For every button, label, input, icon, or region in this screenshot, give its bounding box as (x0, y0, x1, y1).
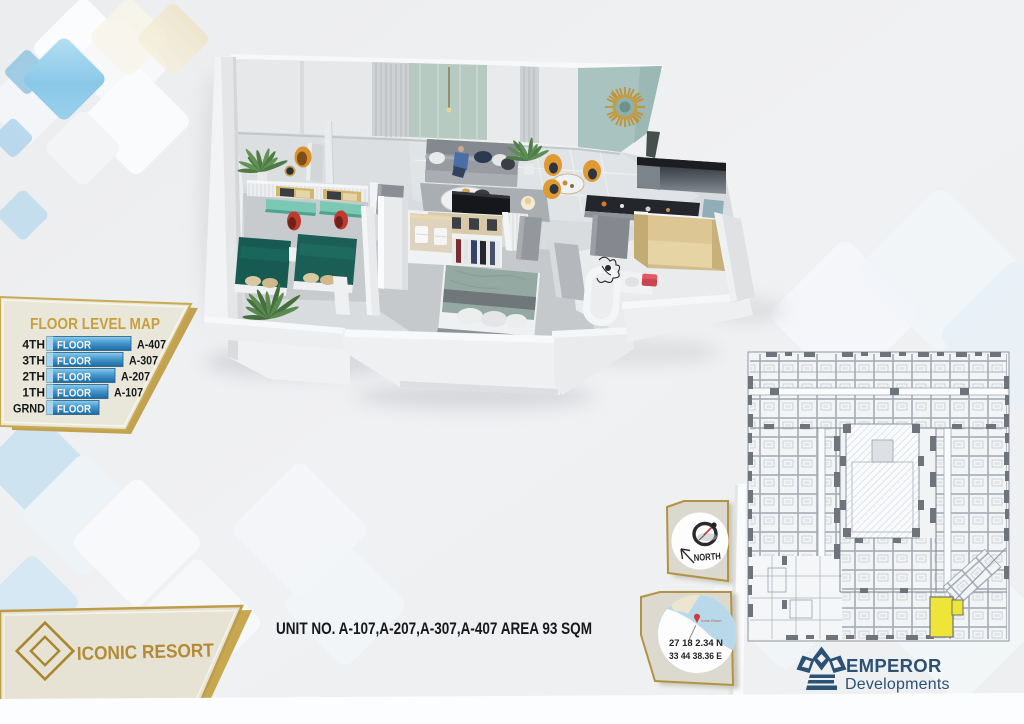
svg-text:A-107: A-107 (114, 386, 143, 400)
svg-text:33 44 38.36 E: 33 44 38.36 E (669, 651, 722, 661)
svg-text:1TH: 1TH (22, 386, 45, 400)
svg-text:UNIT NO. A-107,A-207,A-307,A-: UNIT NO. A-107,A-207,A-307,A-407 AREA 93… (276, 620, 592, 638)
svg-text:FLOOR: FLOOR (57, 356, 91, 368)
svg-text:FLOOR: FLOOR (57, 340, 91, 352)
svg-text:27 18 2.34 N: 27 18 2.34 N (669, 638, 723, 648)
svg-text:FLOOR: FLOOR (57, 372, 91, 384)
svg-text:ICONIC RESORT: ICONIC RESORT (77, 640, 215, 665)
svg-text:NORTH: NORTH (693, 551, 721, 564)
svg-text:2TH: 2TH (22, 370, 45, 384)
svg-text:A-407: A-407 (137, 338, 166, 352)
svg-text:Iconic Resort: Iconic Resort (701, 619, 721, 623)
svg-text:FLOOR: FLOOR (57, 404, 91, 416)
svg-text:EMPEROR: EMPEROR (846, 655, 942, 676)
svg-text:Developments: Developments (845, 676, 950, 693)
svg-text:A-207: A-207 (121, 370, 150, 384)
svg-text:4TH: 4TH (22, 338, 45, 352)
svg-text:3TH: 3TH (22, 354, 45, 368)
svg-text:GRND: GRND (13, 402, 45, 416)
svg-text:A-307: A-307 (129, 354, 158, 368)
svg-text:FLOOR LEVEL MAP: FLOOR LEVEL MAP (30, 316, 160, 333)
svg-text:FLOOR: FLOOR (57, 388, 91, 400)
